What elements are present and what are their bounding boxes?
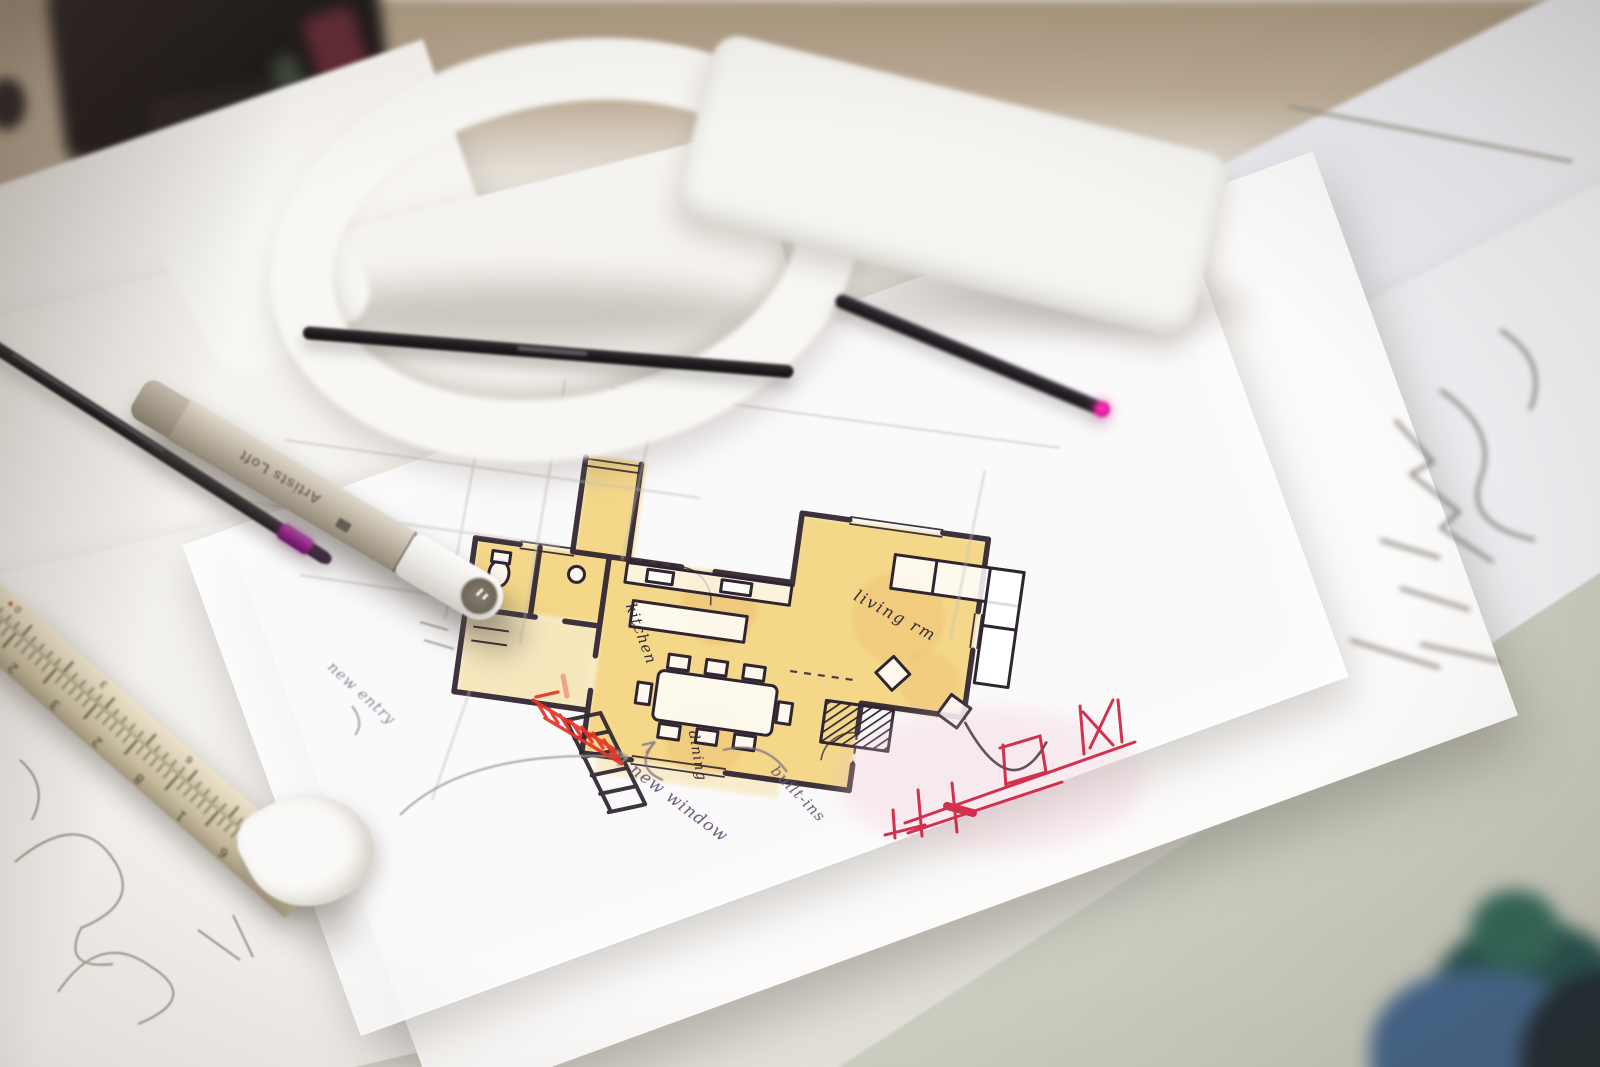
pencil-glint [517,346,587,356]
blue-green-object [1370,880,1600,1067]
ruler-number: 8 [132,770,148,787]
ruler-number: 1 [174,807,190,824]
ruler-number: 3 [48,696,64,713]
built-in-hatched [821,700,894,751]
blue-green-object-part [1470,890,1560,970]
ruler-number: 2 [90,733,106,750]
ruler-number: 6 [216,844,232,861]
floor-plan-drawing: kitchen dining living rm [376,432,1113,982]
ruler-number: 2 [6,659,22,676]
photo-scene: kitchen dining living rm [0,0,1600,1067]
ruler-number: 0 [12,603,24,615]
ruler-number: 6 [184,753,196,765]
ruler-number: 3 [98,678,110,690]
curved-bay [959,722,1048,774]
